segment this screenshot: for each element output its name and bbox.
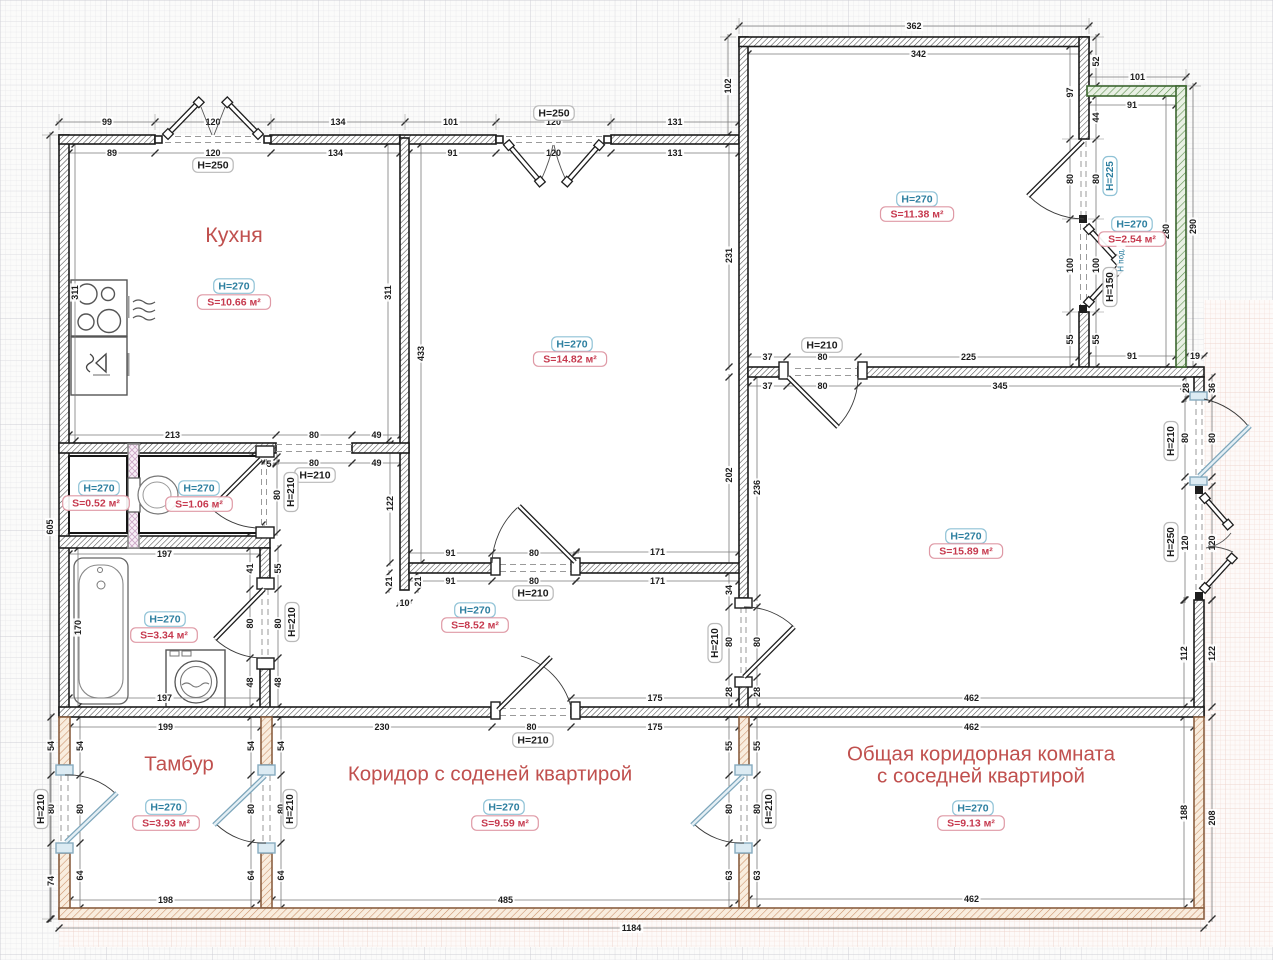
- svg-text:188: 188: [1179, 805, 1189, 820]
- svg-text:H=270: H=270: [149, 614, 180, 626]
- svg-text:170: 170: [73, 620, 83, 635]
- svg-text:Кухня: Кухня: [205, 223, 263, 247]
- svg-text:605: 605: [45, 519, 55, 534]
- svg-text:433: 433: [416, 346, 426, 361]
- svg-text:H=210: H=210: [517, 588, 548, 600]
- svg-text:H=270: H=270: [459, 605, 490, 617]
- svg-text:362: 362: [906, 21, 921, 31]
- svg-text:S=8.52 м²: S=8.52 м²: [451, 620, 499, 632]
- svg-text:197: 197: [157, 693, 172, 703]
- svg-text:H=210: H=210: [299, 470, 330, 482]
- svg-text:55: 55: [273, 563, 283, 573]
- svg-text:100: 100: [1091, 258, 1101, 273]
- svg-text:H=270: H=270: [950, 531, 981, 543]
- svg-text:Общая коридорная комната: Общая коридорная комната: [847, 743, 1116, 766]
- svg-text:S=14.82 м²: S=14.82 м²: [543, 354, 597, 366]
- svg-text:225: 225: [961, 352, 976, 362]
- svg-text:54: 54: [75, 741, 85, 751]
- svg-text:H=210: H=210: [286, 477, 297, 507]
- svg-text:36: 36: [1207, 383, 1217, 393]
- svg-text:100: 100: [1065, 258, 1075, 273]
- svg-text:80: 80: [817, 381, 827, 391]
- svg-text:55: 55: [1091, 334, 1101, 344]
- svg-text:H=270: H=270: [83, 483, 114, 495]
- svg-text:120: 120: [546, 148, 561, 158]
- svg-text:342: 342: [911, 49, 926, 59]
- svg-text:80: 80: [273, 618, 283, 628]
- svg-text:197: 197: [157, 549, 172, 559]
- svg-text:28: 28: [752, 687, 762, 697]
- svg-text:H=210: H=210: [517, 735, 548, 747]
- svg-text:80: 80: [526, 722, 536, 732]
- svg-text:H=210: H=210: [1166, 426, 1177, 456]
- svg-text:462: 462: [964, 693, 979, 703]
- svg-text:64: 64: [276, 870, 286, 880]
- svg-text:91: 91: [447, 148, 457, 158]
- svg-text:55: 55: [1065, 334, 1075, 344]
- svg-text:48: 48: [273, 677, 283, 687]
- svg-text:213: 213: [165, 430, 180, 440]
- svg-text:55: 55: [752, 741, 762, 751]
- svg-text:345: 345: [992, 381, 1007, 391]
- svg-text:80: 80: [529, 576, 539, 586]
- svg-text:208: 208: [1207, 810, 1217, 825]
- svg-text:175: 175: [647, 693, 662, 703]
- svg-text:21: 21: [413, 576, 423, 586]
- svg-text:231: 231: [724, 248, 734, 263]
- svg-text:S=9.13 м²: S=9.13 м²: [947, 818, 995, 830]
- svg-text:485: 485: [498, 895, 513, 905]
- svg-text:97: 97: [1065, 87, 1075, 97]
- svg-text:H=150: H=150: [1105, 272, 1116, 302]
- svg-text:80: 80: [724, 637, 734, 647]
- svg-text:S=3.34 м²: S=3.34 м²: [140, 630, 188, 642]
- svg-text:H=210: H=210: [36, 794, 47, 824]
- svg-text:63: 63: [724, 870, 734, 880]
- svg-text:H=270: H=270: [183, 483, 214, 495]
- svg-text:91: 91: [1127, 100, 1137, 110]
- svg-text:80: 80: [1065, 174, 1075, 184]
- svg-text:122: 122: [385, 496, 395, 511]
- svg-text:Тамбур: Тамбур: [144, 753, 214, 776]
- svg-text:91: 91: [445, 548, 455, 558]
- svg-text:134: 134: [330, 117, 345, 127]
- svg-text:80: 80: [309, 430, 319, 440]
- svg-text:49: 49: [371, 458, 381, 468]
- svg-text:41: 41: [245, 563, 255, 573]
- svg-text:80: 80: [724, 804, 734, 814]
- svg-text:199: 199: [158, 722, 173, 732]
- svg-text:S=2.54 м²: S=2.54 м²: [1108, 234, 1156, 246]
- svg-text:171: 171: [650, 576, 665, 586]
- svg-text:171: 171: [650, 547, 665, 557]
- svg-text:120: 120: [205, 117, 220, 127]
- svg-text:48: 48: [245, 677, 255, 687]
- svg-text:120: 120: [1180, 535, 1190, 550]
- svg-text:120: 120: [205, 148, 220, 158]
- svg-text:236: 236: [752, 480, 762, 495]
- svg-text:101: 101: [443, 117, 458, 127]
- svg-text:131: 131: [667, 148, 682, 158]
- svg-text:H=270: H=270: [218, 281, 249, 293]
- svg-text:H=270: H=270: [901, 194, 932, 206]
- svg-text:H=270: H=270: [556, 339, 587, 351]
- svg-text:80: 80: [752, 804, 762, 814]
- svg-text:H=210: H=210: [806, 340, 837, 352]
- svg-text:Коридор с соденей квартирой: Коридор с соденей квартирой: [348, 763, 632, 786]
- svg-text:80: 80: [752, 637, 762, 647]
- svg-text:H=270: H=270: [957, 803, 988, 815]
- svg-text:S=0.52 м²: S=0.52 м²: [72, 498, 120, 510]
- svg-text:10: 10: [399, 598, 409, 608]
- svg-text:230: 230: [374, 722, 389, 732]
- svg-text:80: 80: [245, 618, 255, 628]
- svg-text:80: 80: [1207, 433, 1217, 443]
- svg-text:21: 21: [384, 576, 394, 586]
- svg-text:80: 80: [529, 548, 539, 558]
- svg-text:311: 311: [383, 285, 393, 300]
- svg-text:28: 28: [724, 687, 734, 697]
- svg-text:462: 462: [964, 722, 979, 732]
- svg-text:H=210: H=210: [710, 628, 721, 658]
- svg-text:H=210: H=210: [764, 794, 775, 824]
- svg-text:H=210: H=210: [285, 794, 296, 824]
- svg-text:112: 112: [1179, 646, 1189, 661]
- svg-text:S=9.59 м²: S=9.59 м²: [481, 818, 529, 830]
- svg-text:64: 64: [246, 870, 256, 880]
- svg-text:198: 198: [158, 895, 173, 905]
- svg-text:89: 89: [107, 148, 117, 158]
- svg-text:290: 290: [1188, 219, 1198, 234]
- svg-text:S=10.66 м²: S=10.66 м²: [207, 297, 261, 309]
- svg-text:80: 80: [75, 804, 85, 814]
- svg-text:H=250: H=250: [197, 160, 228, 172]
- svg-text:134: 134: [328, 148, 343, 158]
- svg-text:131: 131: [667, 117, 682, 127]
- svg-text:S=15.89 м²: S=15.89 м²: [939, 546, 993, 558]
- svg-text:80: 80: [309, 458, 319, 468]
- svg-text:H=250: H=250: [1166, 527, 1177, 557]
- svg-text:102: 102: [723, 78, 733, 93]
- svg-text:H=250: H=250: [538, 108, 569, 120]
- svg-text:80: 80: [272, 490, 282, 500]
- svg-text:101: 101: [1130, 72, 1145, 82]
- svg-text:91: 91: [1127, 351, 1137, 361]
- svg-text:80: 80: [817, 352, 827, 362]
- svg-text:64: 64: [75, 870, 85, 880]
- svg-text:311: 311: [70, 285, 80, 300]
- svg-text:54: 54: [246, 741, 256, 751]
- svg-text:H=270: H=270: [1116, 219, 1147, 231]
- svg-text:80: 80: [1091, 174, 1101, 184]
- svg-text:80: 80: [246, 804, 256, 814]
- svg-text:Н под.: Н под.: [1117, 248, 1126, 272]
- svg-text:19: 19: [1190, 351, 1200, 361]
- svg-text:63: 63: [752, 870, 762, 880]
- svg-text:37: 37: [762, 381, 772, 391]
- svg-text:74: 74: [46, 876, 56, 886]
- svg-text:с соседней квартирой: с соседней квартирой: [877, 765, 1085, 788]
- svg-text:S=3.93 м²: S=3.93 м²: [142, 818, 190, 830]
- svg-text:202: 202: [724, 467, 734, 482]
- svg-text:1184: 1184: [622, 923, 642, 933]
- svg-text:5: 5: [266, 459, 271, 469]
- svg-text:99: 99: [102, 117, 112, 127]
- svg-text:H=270: H=270: [150, 802, 181, 814]
- svg-text:54: 54: [276, 741, 286, 751]
- svg-text:55: 55: [724, 741, 734, 751]
- svg-text:52: 52: [1091, 56, 1101, 66]
- svg-text:H=270: H=270: [488, 802, 519, 814]
- svg-text:462: 462: [964, 894, 979, 904]
- svg-text:S=11.38 м²: S=11.38 м²: [890, 209, 944, 221]
- svg-text:37: 37: [762, 352, 772, 362]
- svg-text:91: 91: [445, 576, 455, 586]
- svg-text:H=225: H=225: [1105, 161, 1116, 191]
- svg-text:54: 54: [46, 741, 56, 751]
- svg-text:175: 175: [647, 722, 662, 732]
- svg-text:S=1.06 м²: S=1.06 м²: [175, 499, 223, 511]
- svg-text:80: 80: [1180, 433, 1190, 443]
- svg-text:122: 122: [1207, 646, 1217, 661]
- svg-text:49: 49: [371, 430, 381, 440]
- svg-text:H=210: H=210: [287, 607, 298, 637]
- svg-text:120: 120: [1207, 535, 1217, 550]
- svg-text:44: 44: [1091, 112, 1101, 122]
- svg-text:34: 34: [724, 585, 734, 595]
